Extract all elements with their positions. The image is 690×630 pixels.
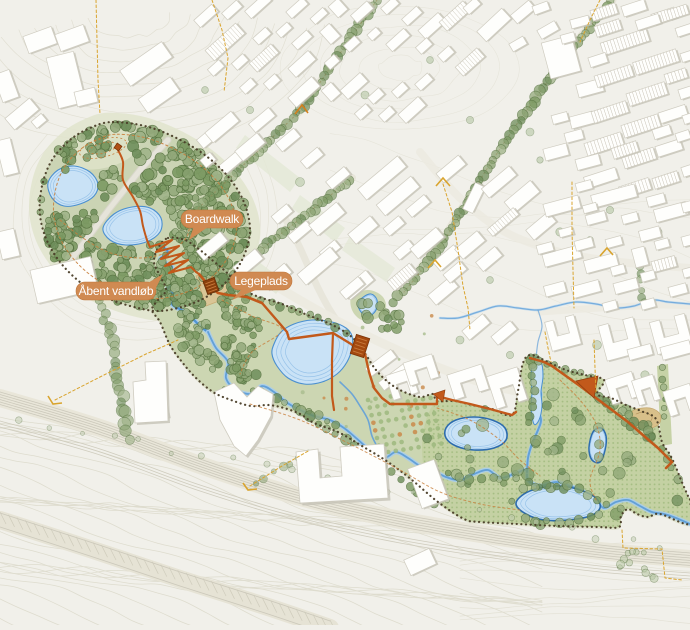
svg-text:Boardwalk: Boardwalk: [185, 212, 240, 226]
svg-text:Åbent vandløb: Åbent vandløb: [79, 283, 154, 298]
svg-text:Legeplads: Legeplads: [234, 274, 288, 288]
